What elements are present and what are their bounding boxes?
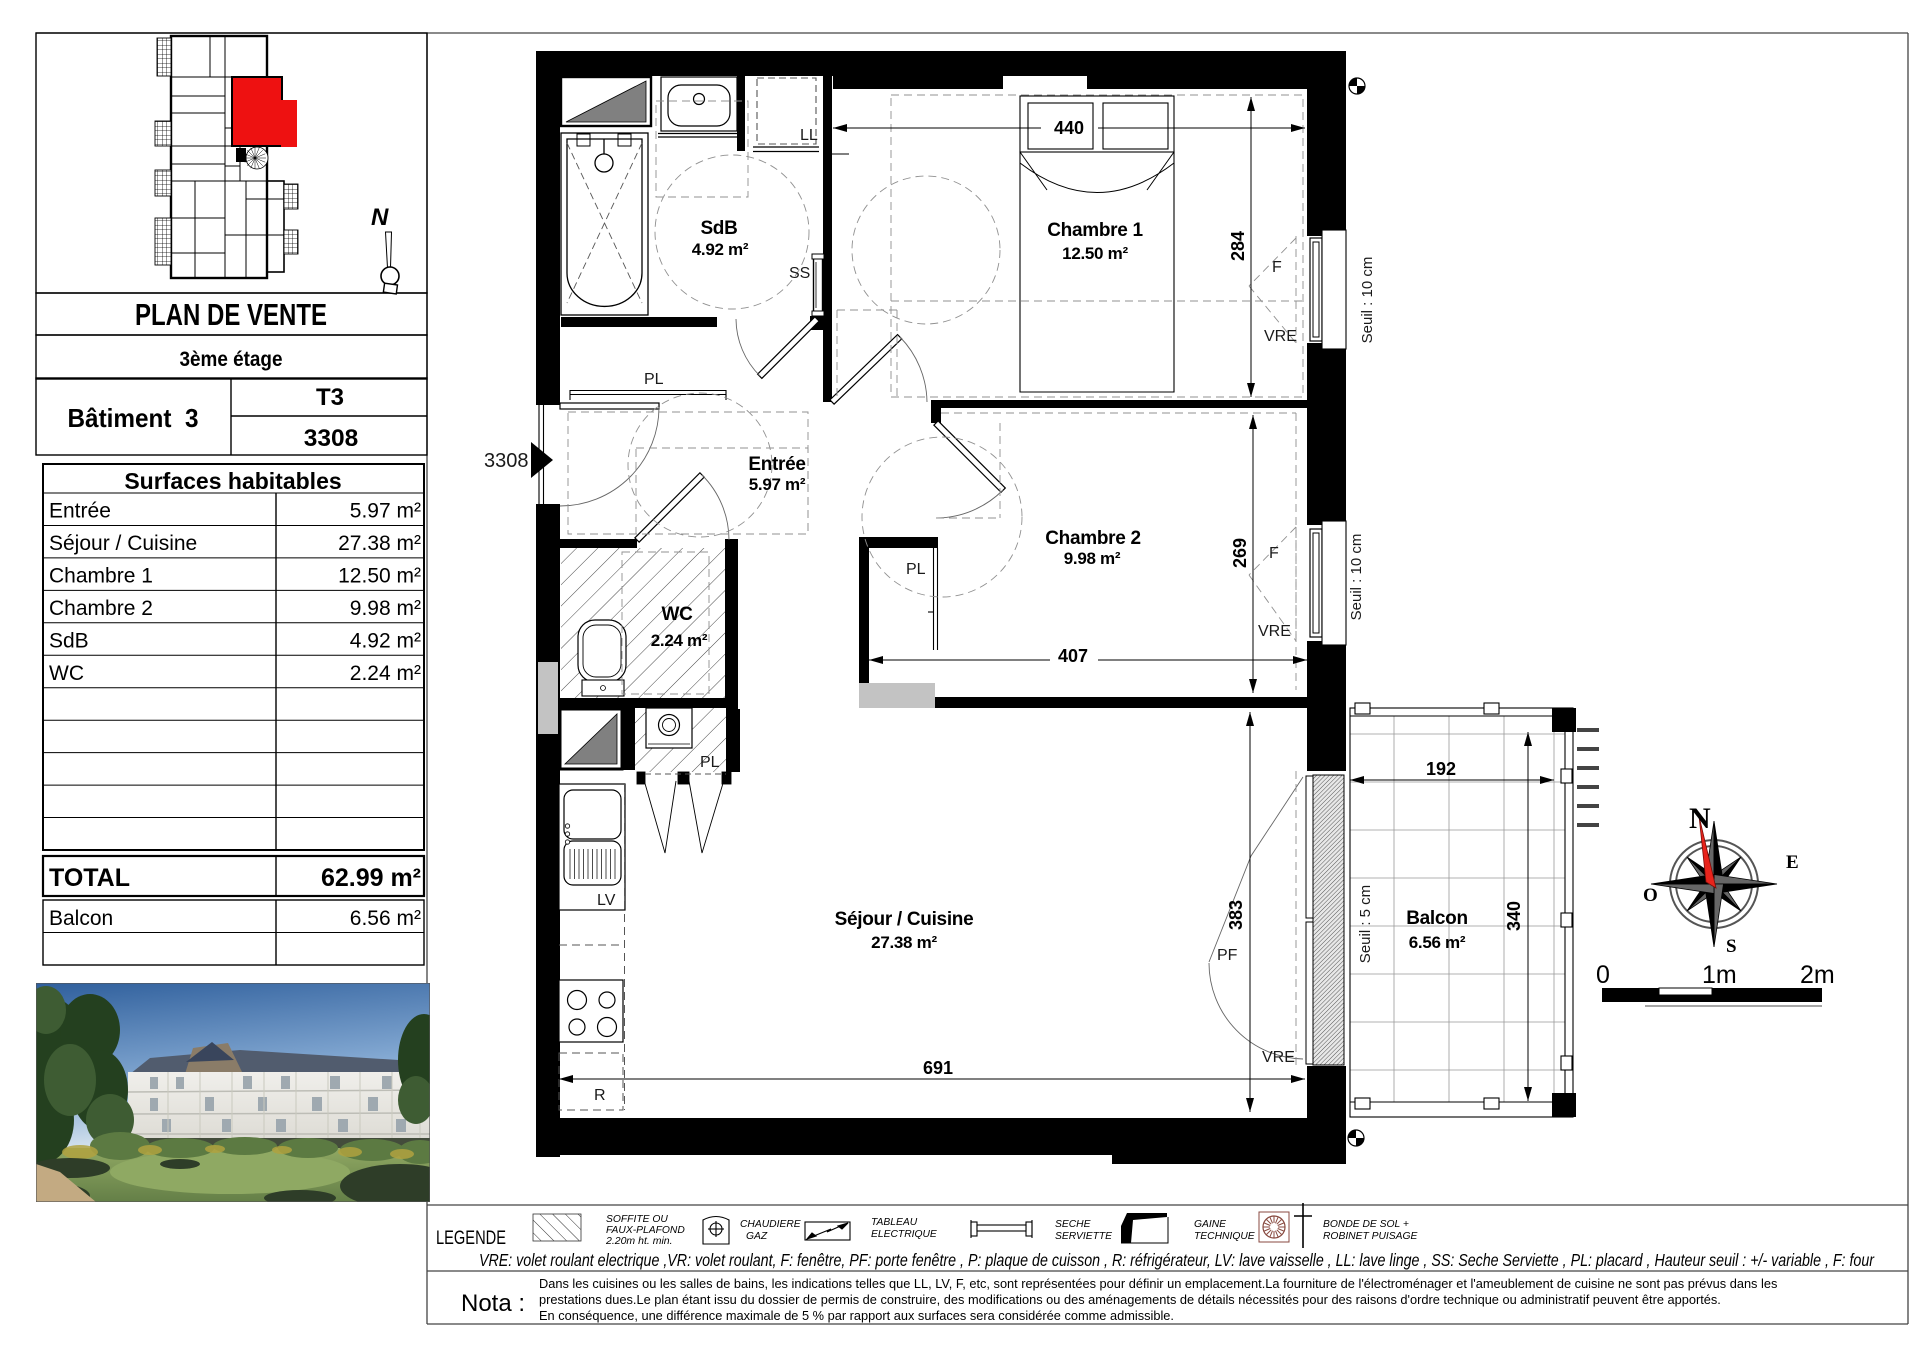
svg-text:R: R bbox=[594, 1087, 606, 1104]
svg-text:2.24 m²: 2.24 m² bbox=[350, 662, 421, 685]
svg-text:PL: PL bbox=[906, 561, 926, 578]
svg-text:VRE: VRE bbox=[1258, 623, 1291, 640]
svg-text:VRE: VRE bbox=[1264, 328, 1297, 345]
svg-text:PF: PF bbox=[1217, 947, 1238, 964]
svg-text:269: 269 bbox=[1230, 538, 1250, 568]
svg-text:GAZ: GAZ bbox=[746, 1231, 768, 1242]
svg-text:27.38 m²: 27.38 m² bbox=[338, 532, 421, 555]
svg-text:4.92 m²: 4.92 m² bbox=[692, 240, 749, 259]
svg-text:En conséquence, une différence: En conséquence, une différence maximale … bbox=[539, 1308, 1174, 1323]
svg-text:N: N bbox=[371, 204, 389, 231]
svg-text:SERVIETTE: SERVIETTE bbox=[1055, 1231, 1112, 1242]
svg-text:WC: WC bbox=[661, 604, 693, 625]
svg-text:LEGENDE: LEGENDE bbox=[436, 1228, 506, 1249]
svg-text:6.56 m²: 6.56 m² bbox=[1409, 933, 1466, 952]
svg-text:SS: SS bbox=[789, 265, 810, 282]
svg-text:Dans les cuisines ou les salle: Dans les cuisines ou les salles de bains… bbox=[539, 1276, 1777, 1291]
svg-text:CHAUDIERE: CHAUDIERE bbox=[740, 1219, 801, 1230]
svg-text:VRE: VRE bbox=[1262, 1049, 1295, 1066]
svg-text:2m: 2m bbox=[1800, 961, 1835, 989]
svg-text:TOTAL: TOTAL bbox=[49, 864, 130, 892]
svg-text:440: 440 bbox=[1054, 118, 1084, 138]
svg-text:Entrée: Entrée bbox=[748, 454, 805, 475]
svg-text:LL: LL bbox=[800, 127, 818, 144]
svg-text:ROBINET PUISAGE: ROBINET PUISAGE bbox=[1323, 1231, 1418, 1242]
svg-text:Chambre 1: Chambre 1 bbox=[49, 564, 153, 587]
svg-text:VRE: volet roulant electrique: VRE: volet roulant electrique ,VR: volet… bbox=[479, 1250, 1875, 1270]
svg-text:prestations dues.Le plan étant: prestations dues.Le plan étant issu du d… bbox=[539, 1292, 1721, 1307]
svg-text:F: F bbox=[1272, 259, 1282, 276]
svg-text:LV: LV bbox=[597, 892, 616, 909]
svg-text:Entrée: Entrée bbox=[49, 500, 111, 523]
svg-text:PL: PL bbox=[700, 754, 720, 771]
svg-text:BONDE DE SOL +: BONDE DE SOL + bbox=[1323, 1219, 1409, 1230]
svg-text:ELECTRIQUE: ELECTRIQUE bbox=[871, 1229, 937, 1240]
svg-text:SECHE: SECHE bbox=[1055, 1219, 1091, 1230]
svg-text:Seuil : 10 cm: Seuil : 10 cm bbox=[1359, 257, 1376, 344]
svg-text:Séjour / Cuisine: Séjour / Cuisine bbox=[835, 909, 974, 930]
svg-text:5.97 m²: 5.97 m² bbox=[350, 500, 421, 523]
svg-text:12.50 m²: 12.50 m² bbox=[338, 564, 421, 587]
svg-text:Chambre 2: Chambre 2 bbox=[49, 597, 153, 620]
svg-text:Balcon: Balcon bbox=[1406, 908, 1468, 929]
svg-text:SOFFITE OU: SOFFITE OU bbox=[606, 1214, 668, 1225]
svg-text:O: O bbox=[1643, 885, 1658, 906]
svg-text:9.98 m²: 9.98 m² bbox=[1064, 549, 1121, 568]
svg-text:Surfaces habitables: Surfaces habitables bbox=[124, 468, 341, 494]
svg-text:TECHNIQUE: TECHNIQUE bbox=[1194, 1231, 1255, 1242]
svg-text:TABLEAU: TABLEAU bbox=[871, 1217, 918, 1228]
svg-text:6.56 m²: 6.56 m² bbox=[350, 907, 421, 930]
svg-text:Séjour / Cuisine: Séjour / Cuisine bbox=[49, 532, 197, 555]
svg-text:WC: WC bbox=[49, 662, 84, 685]
svg-text:5.97 m²: 5.97 m² bbox=[749, 475, 806, 494]
svg-text:2.20m ht. min.: 2.20m ht. min. bbox=[605, 1235, 673, 1247]
svg-text:284: 284 bbox=[1228, 231, 1248, 261]
svg-text:Seuil : 5 cm: Seuil : 5 cm bbox=[1357, 885, 1374, 963]
svg-text:691: 691 bbox=[923, 1058, 953, 1078]
svg-text:3ème étage: 3ème étage bbox=[180, 348, 283, 371]
svg-text:192: 192 bbox=[1426, 759, 1456, 779]
svg-text:27.38 m²: 27.38 m² bbox=[871, 933, 937, 952]
svg-text:383: 383 bbox=[1226, 900, 1246, 930]
svg-text:SdB: SdB bbox=[700, 218, 737, 239]
svg-text:PL: PL bbox=[644, 371, 664, 388]
svg-text:Chambre 2: Chambre 2 bbox=[1045, 528, 1141, 549]
svg-text:2.24 m²: 2.24 m² bbox=[651, 631, 708, 650]
svg-text:T3: T3 bbox=[316, 384, 344, 411]
svg-text:9.98 m²: 9.98 m² bbox=[350, 597, 421, 620]
svg-text:F: F bbox=[1269, 545, 1279, 562]
svg-text:GAINE: GAINE bbox=[1194, 1219, 1226, 1230]
svg-text:N: N bbox=[1689, 802, 1711, 835]
svg-text:407: 407 bbox=[1058, 646, 1088, 666]
svg-text:0: 0 bbox=[1596, 961, 1610, 989]
svg-text:PLAN DE VENTE: PLAN DE VENTE bbox=[135, 297, 327, 332]
svg-text:Balcon: Balcon bbox=[49, 907, 113, 930]
svg-text:3308: 3308 bbox=[484, 450, 529, 472]
svg-text:E: E bbox=[1786, 852, 1799, 873]
svg-text:Chambre 1: Chambre 1 bbox=[1047, 220, 1143, 241]
svg-text:1m: 1m bbox=[1702, 961, 1737, 989]
svg-text:SdB: SdB bbox=[49, 629, 89, 652]
svg-text:62.99 m²: 62.99 m² bbox=[321, 864, 421, 892]
svg-text:Bâtiment 3: Bâtiment 3 bbox=[68, 403, 199, 433]
svg-text:340: 340 bbox=[1504, 901, 1524, 931]
svg-text:4.92 m²: 4.92 m² bbox=[350, 629, 421, 652]
svg-text:Seuil : 10 cm: Seuil : 10 cm bbox=[1348, 534, 1365, 621]
svg-text:3308: 3308 bbox=[304, 425, 359, 452]
svg-text:12.50 m²: 12.50 m² bbox=[1062, 244, 1128, 263]
svg-text:S: S bbox=[1726, 936, 1737, 957]
svg-text:Nota :: Nota : bbox=[461, 1290, 525, 1317]
